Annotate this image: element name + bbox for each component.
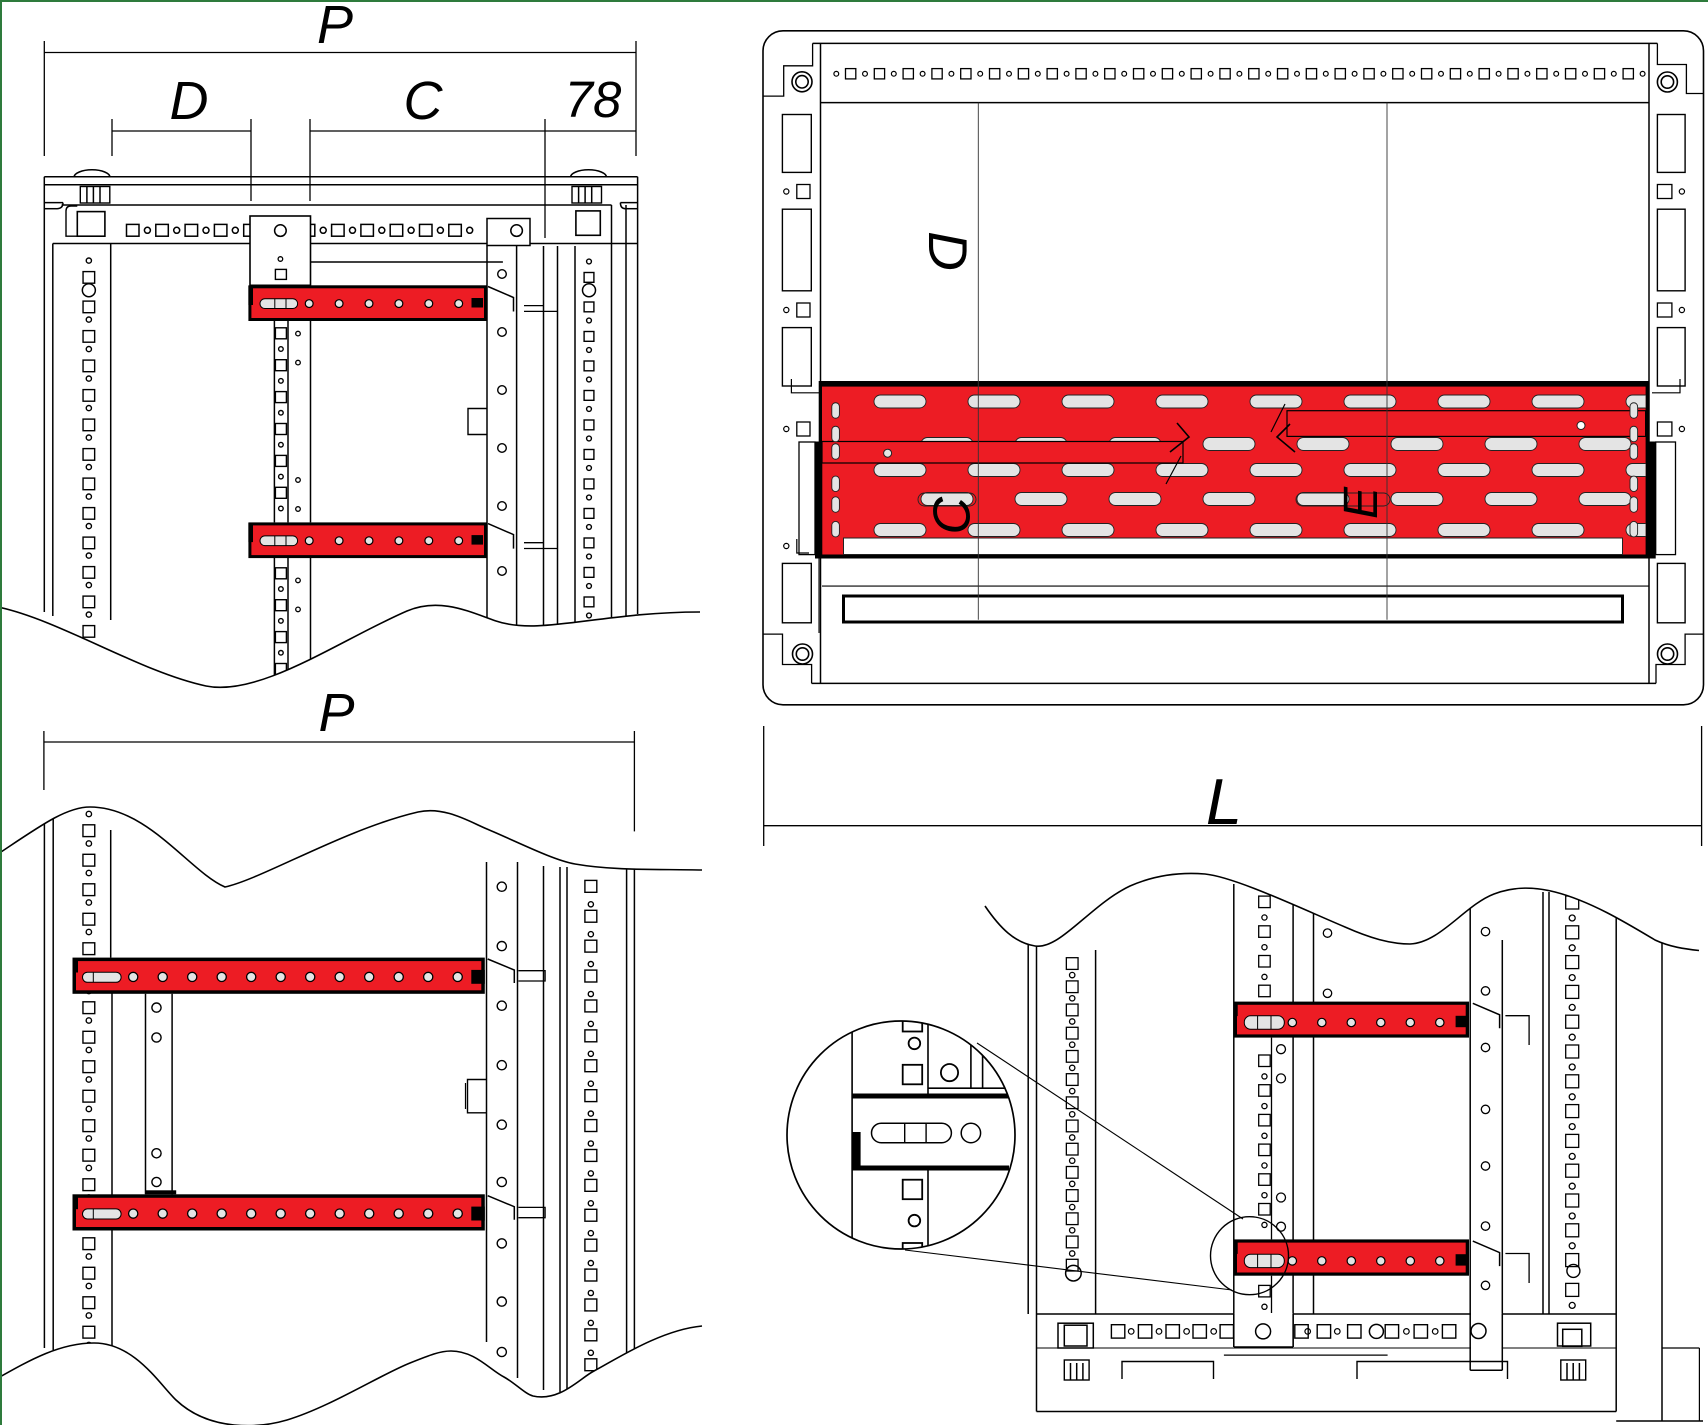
svg-text:P: P — [318, 683, 354, 743]
svg-text:P: P — [317, 0, 353, 55]
svg-text:L: L — [1206, 765, 1242, 838]
svg-text:C: C — [924, 496, 982, 534]
svg-text:D: D — [917, 231, 979, 271]
svg-text:78: 78 — [565, 71, 622, 128]
svg-text:C: C — [404, 71, 444, 131]
svg-text:E: E — [1335, 486, 1388, 519]
svg-text:D: D — [170, 71, 209, 131]
